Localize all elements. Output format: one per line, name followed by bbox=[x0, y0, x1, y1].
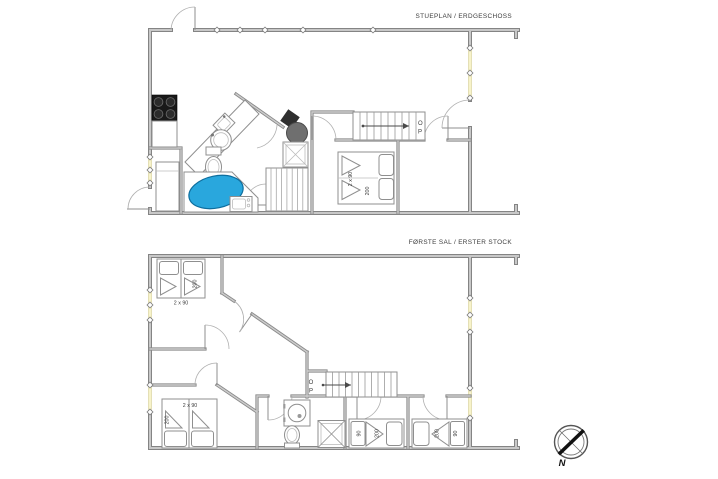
pillow bbox=[160, 262, 179, 275]
stairs-label: P bbox=[309, 389, 313, 395]
vanity-sink bbox=[230, 197, 252, 212]
washing-machine bbox=[283, 400, 310, 426]
duvet bbox=[379, 155, 394, 176]
pillow bbox=[184, 262, 203, 275]
hall-wardrobe bbox=[156, 162, 179, 211]
stairs-label: P bbox=[418, 130, 422, 136]
compass-icon: N bbox=[555, 426, 588, 470]
floor-plan-drawing: STUEPLAN / ERDGESCHOSS bbox=[0, 0, 718, 479]
single-bed-left: 90 200 bbox=[349, 419, 404, 448]
stairs-up: O P bbox=[309, 372, 397, 397]
first-floor-plan: FØRSTE SAL / ERSTER STOCK bbox=[147, 239, 518, 450]
ground-floor-title: STUEPLAN / ERDGESCHOSS bbox=[416, 13, 512, 20]
wood-stove bbox=[287, 123, 308, 144]
duvet bbox=[414, 422, 430, 446]
bed-width-label: 2 x 90 bbox=[348, 172, 354, 186]
first-floor-title: FØRSTE SAL / ERSTER STOCK bbox=[409, 239, 513, 246]
stairs-label: O bbox=[309, 380, 314, 386]
bed-length-label: 200 bbox=[365, 187, 371, 196]
pillow bbox=[192, 431, 214, 447]
twin-bed-bottom-left: 2 x 90 200 bbox=[162, 399, 217, 448]
kitchen-counter bbox=[152, 121, 177, 147]
single-bed-right: 200 90 bbox=[412, 419, 467, 448]
floor-plan-page: STUEPLAN / ERDGESCHOSS bbox=[0, 0, 718, 479]
bed-length-label: 200 bbox=[375, 429, 381, 438]
bed-length-label: 200 bbox=[193, 280, 199, 289]
stairs-label: O bbox=[418, 121, 423, 127]
toilet bbox=[285, 426, 300, 448]
tech-shaft bbox=[283, 142, 308, 167]
striped-closet bbox=[266, 168, 308, 211]
compass-north-label: N bbox=[559, 458, 567, 469]
stairs-up: O P bbox=[353, 112, 425, 140]
duvet bbox=[387, 422, 403, 446]
bed-length-label: 200 bbox=[435, 429, 441, 438]
bed-length-label: 200 bbox=[165, 416, 171, 425]
twin-bed-top-left: 2 x 90 200 bbox=[157, 259, 205, 307]
ground-floor-plan: STUEPLAN / ERDGESCHOSS bbox=[127, 7, 518, 215]
pillow bbox=[165, 431, 187, 447]
duvet bbox=[379, 179, 394, 200]
bed-width-label: 2 x 90 bbox=[174, 301, 188, 307]
double-bed: 2 x 90 200 bbox=[338, 152, 394, 204]
bed-width-label: 90 bbox=[357, 431, 363, 437]
bed-width-label: 2 x 90 bbox=[183, 403, 197, 409]
shower bbox=[318, 421, 345, 448]
bed-width-label: 90 bbox=[453, 431, 459, 437]
